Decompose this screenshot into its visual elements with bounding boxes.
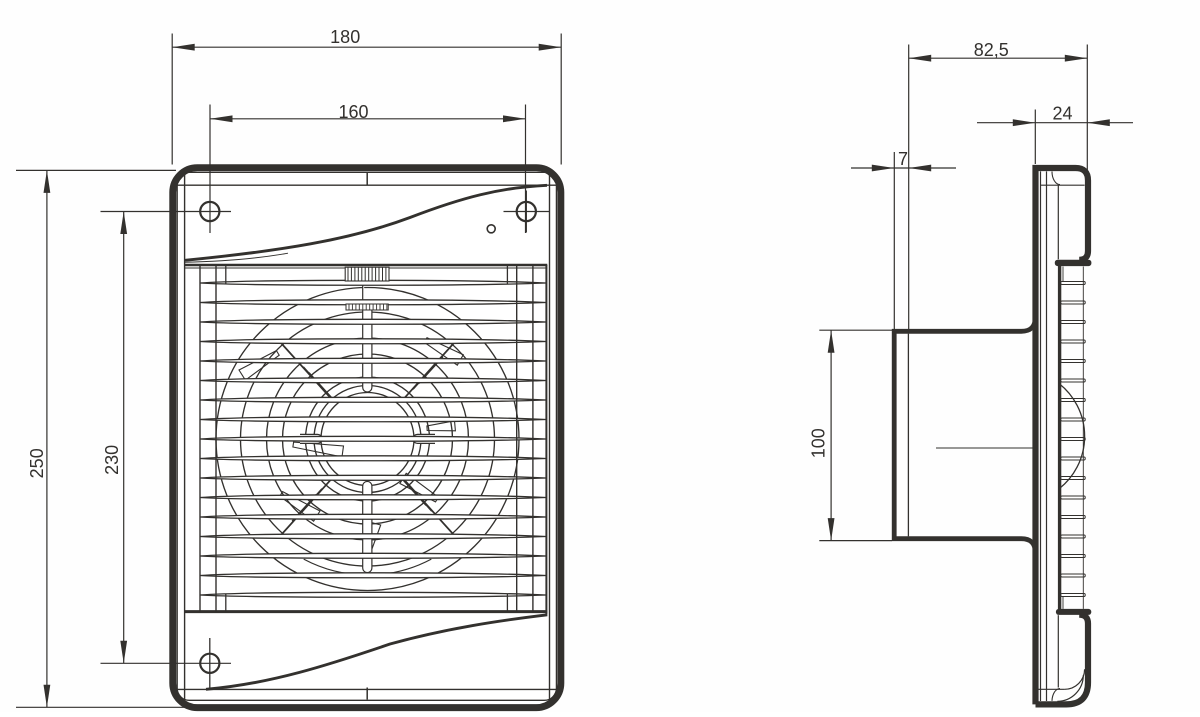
svg-text:230: 230 — [102, 445, 122, 475]
svg-text:250: 250 — [27, 448, 47, 478]
svg-text:82,5: 82,5 — [974, 40, 1009, 60]
svg-text:7: 7 — [898, 149, 908, 169]
svg-text:160: 160 — [338, 102, 368, 122]
svg-text:180: 180 — [330, 27, 360, 47]
svg-text:100: 100 — [808, 428, 828, 458]
svg-text:24: 24 — [1052, 104, 1072, 124]
